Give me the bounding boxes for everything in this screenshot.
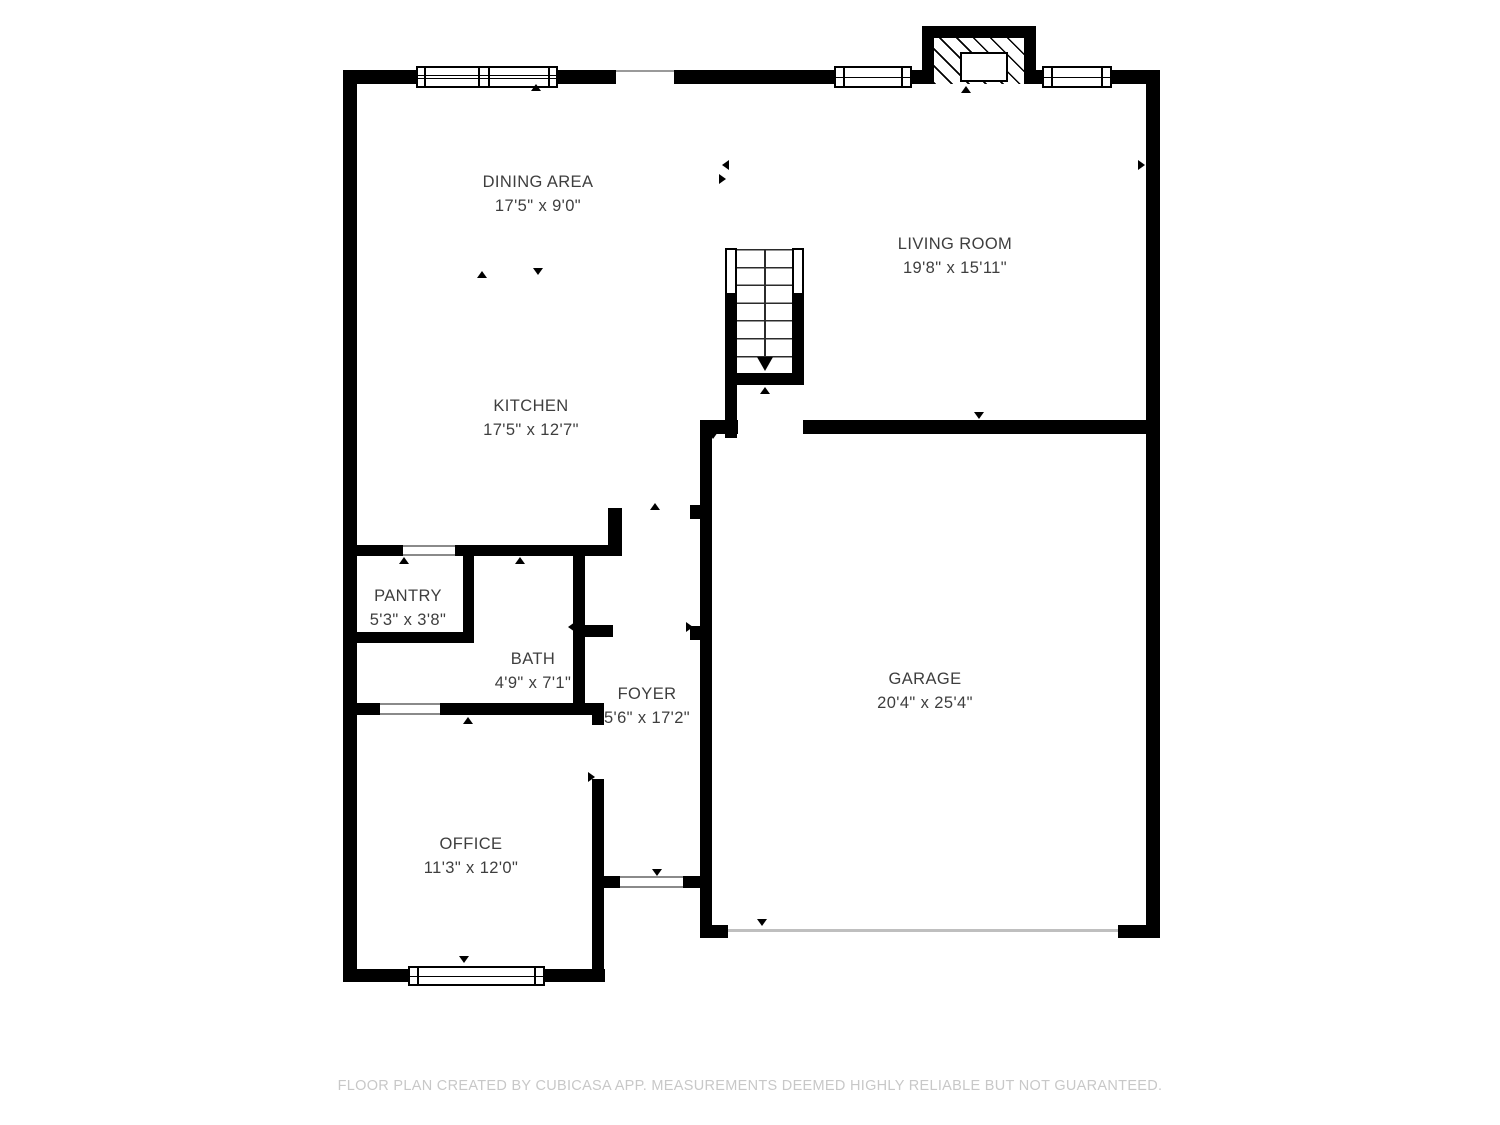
direction-marker — [568, 622, 575, 632]
room-label-office: OFFICE 11'3" x 12'0" — [424, 832, 518, 880]
direction-marker — [477, 271, 487, 278]
wall-kitchen-stub — [608, 508, 622, 556]
wall-living-garage — [803, 420, 1158, 434]
stair-wall-left — [725, 295, 737, 438]
direction-marker — [459, 956, 469, 963]
stair-rail-left — [725, 248, 737, 295]
window-glazing-line — [410, 976, 543, 977]
entry-door-opening — [620, 876, 683, 888]
direction-marker — [350, 341, 357, 351]
doorway-opening — [616, 70, 674, 84]
wall-foyer-stub-upper — [690, 505, 700, 519]
pantry-door-opening — [403, 545, 455, 556]
room-label-bath: BATH 4'9" x 7'1" — [495, 647, 572, 695]
direction-marker — [531, 84, 541, 91]
window-glazing-line — [418, 78, 556, 79]
room-dimensions: 20'4" x 25'4" — [877, 691, 973, 715]
direction-marker — [533, 268, 543, 275]
stair-direction-arrow — [757, 357, 773, 371]
wall-bath-door-stub — [573, 625, 613, 637]
wall-pantry-bottom — [343, 632, 473, 643]
window — [408, 966, 545, 986]
window-mullion — [488, 68, 490, 86]
room-name: KITCHEN — [483, 394, 579, 418]
room-name: BATH — [495, 647, 572, 671]
wall-garage-left — [700, 420, 712, 938]
wall-garage-bottom-left — [700, 925, 728, 938]
room-name: OFFICE — [424, 832, 518, 856]
room-label-living-room: LIVING ROOM 19'8" x 15'11" — [898, 232, 1012, 280]
direction-marker — [588, 772, 595, 782]
stair-centerline — [764, 249, 766, 359]
room-name: FOYER — [604, 682, 690, 706]
direction-marker — [722, 160, 729, 170]
room-dimensions: 11'3" x 12'0" — [424, 856, 518, 880]
direction-marker — [350, 168, 357, 178]
stair-wall-bottom — [725, 373, 804, 385]
direction-marker — [463, 717, 473, 724]
window-glazing-line — [836, 77, 910, 78]
window — [834, 66, 912, 88]
window-glazing-line — [418, 75, 556, 76]
room-label-foyer: FOYER 5'6" x 17'2" — [604, 682, 690, 730]
direction-marker — [515, 557, 525, 564]
direction-marker — [974, 412, 984, 419]
room-dimensions: 5'3" x 3'8" — [370, 608, 447, 632]
room-label-garage: GARAGE 20'4" x 25'4" — [877, 667, 973, 715]
room-name: PANTRY — [370, 584, 447, 608]
direction-marker — [961, 86, 971, 93]
window-mullion — [548, 68, 550, 86]
stair-wall-right — [792, 295, 804, 385]
room-label-dining-area: DINING AREA 17'5" x 9'0" — [483, 170, 594, 218]
garage-door-opening — [728, 929, 1118, 932]
room-dimensions: 5'6" x 17'2" — [604, 706, 690, 730]
room-dimensions: 4'9" x 7'1" — [495, 671, 572, 695]
wall-garage-bottom-right — [1118, 925, 1160, 938]
direction-marker — [652, 869, 662, 876]
footer-disclaimer: FLOOR PLAN CREATED BY CUBICASA APP. MEAS… — [338, 1078, 1163, 1094]
room-label-pantry: PANTRY 5'3" x 3'8" — [370, 584, 447, 632]
wall-left — [343, 70, 357, 982]
direction-marker — [1138, 160, 1145, 170]
direction-marker — [760, 387, 770, 394]
direction-marker — [399, 557, 409, 564]
floor-plan: DINING AREA 17'5" x 9'0" LIVING ROOM 19'… — [0, 0, 1500, 1125]
direction-marker — [719, 174, 726, 184]
window-mullion — [424, 68, 426, 86]
wall-office-right-upper — [592, 703, 604, 725]
room-dimensions: 19'8" x 15'11" — [898, 256, 1012, 280]
wall-kitchen-bottom — [455, 545, 610, 556]
room-label-kitchen: KITCHEN 17'5" x 12'7" — [483, 394, 579, 442]
direction-marker — [757, 919, 767, 926]
room-name: DINING AREA — [483, 170, 594, 194]
room-dimensions: 17'5" x 12'7" — [483, 418, 579, 442]
direction-marker — [686, 622, 693, 632]
stair-rail-right — [792, 248, 804, 295]
window — [1042, 66, 1112, 88]
direction-marker — [708, 432, 718, 439]
wall-right — [1146, 70, 1160, 938]
room-dimensions: 17'5" x 9'0" — [483, 194, 594, 218]
wall-pantry-top — [343, 545, 403, 556]
direction-marker — [650, 503, 660, 510]
wall-pantry-bath-divider — [463, 545, 474, 643]
window-glazing-line — [1044, 77, 1110, 78]
closet-door-opening — [380, 703, 440, 715]
room-name: LIVING ROOM — [898, 232, 1012, 256]
room-name: GARAGE — [877, 667, 973, 691]
window-mullion — [478, 68, 480, 86]
fireplace-firebox — [960, 52, 1008, 82]
